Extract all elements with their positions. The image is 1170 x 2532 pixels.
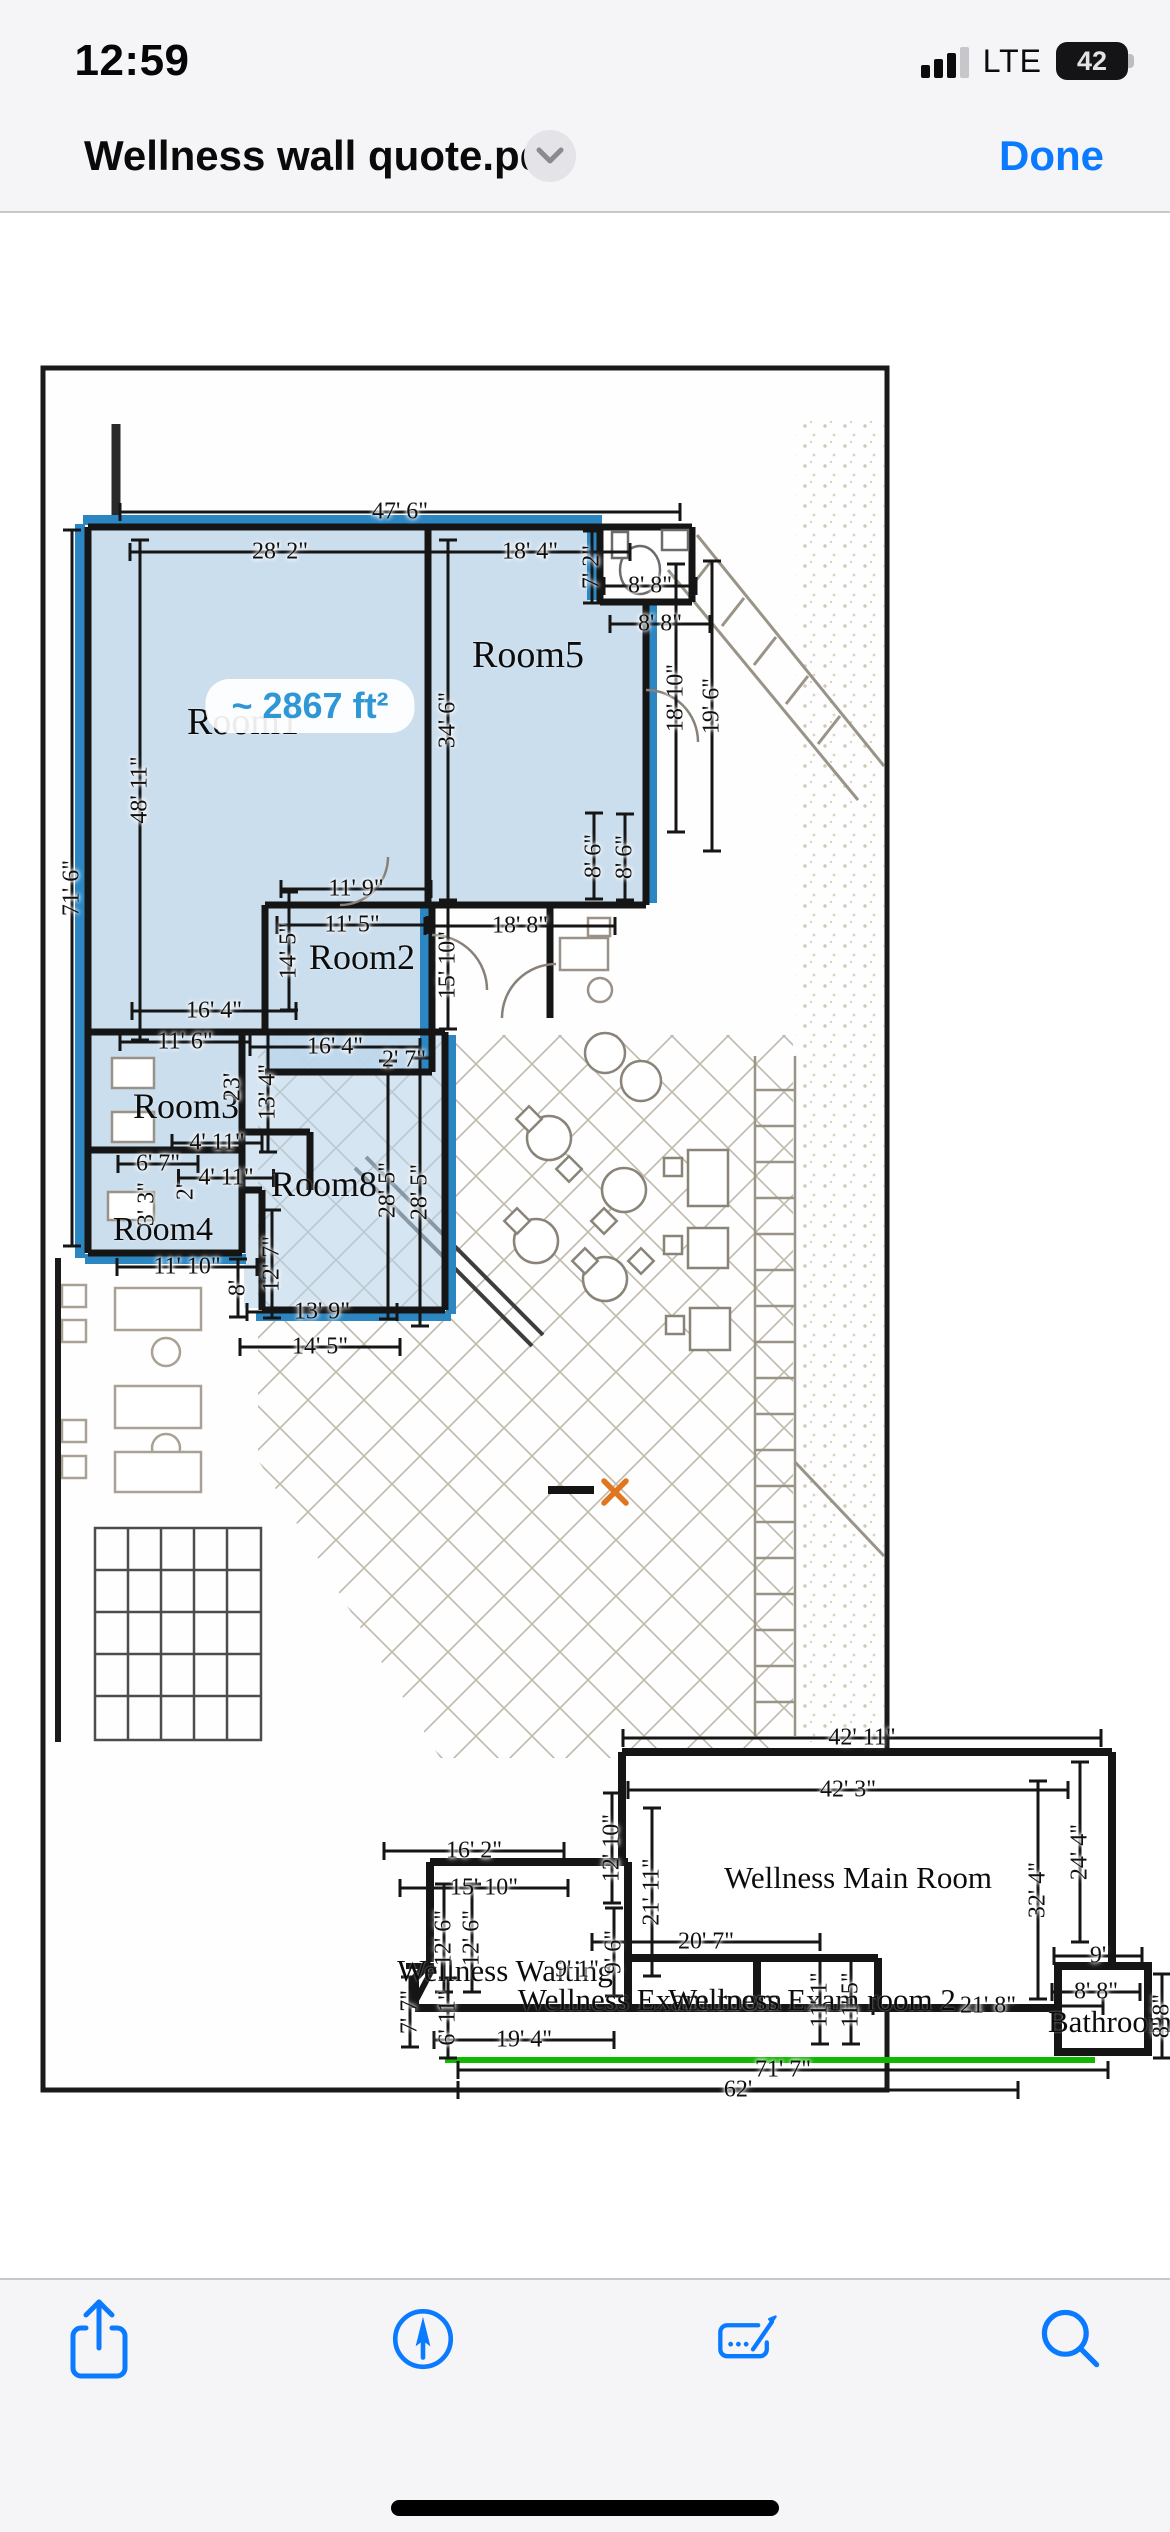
top-chrome: 12:59 LTE 42 Wellness wall quote.pdf Don… (0, 0, 1170, 213)
status-time: 12:59 (72, 36, 192, 86)
form-fill-button[interactable] (704, 2296, 790, 2382)
title-menu-button[interactable] (524, 130, 576, 182)
document-title: Wellness wall quote.pdf (84, 132, 559, 180)
floorplan-drawing (0, 0, 1170, 2532)
battery-icon: 42 (1056, 42, 1134, 80)
search-icon (1034, 2300, 1108, 2378)
network-type-label: LTE (983, 43, 1042, 80)
markup-compass-icon (386, 2299, 460, 2379)
done-button[interactable]: Done (999, 132, 1104, 180)
status-bar: 12:59 LTE 42 (0, 0, 1170, 100)
battery-percentage: 42 (1056, 42, 1128, 80)
cellular-signal-icon (921, 44, 969, 78)
home-indicator[interactable] (391, 2500, 779, 2516)
bottom-toolbar (0, 2278, 1170, 2532)
nav-bar: Wellness wall quote.pdf Done (0, 100, 1170, 211)
form-fill-icon (710, 2299, 784, 2379)
markup-button[interactable] (380, 2296, 466, 2382)
share-button[interactable] (56, 2296, 142, 2382)
share-icon (62, 2296, 136, 2382)
search-button[interactable] (1028, 2296, 1114, 2382)
chevron-down-icon (535, 146, 565, 166)
